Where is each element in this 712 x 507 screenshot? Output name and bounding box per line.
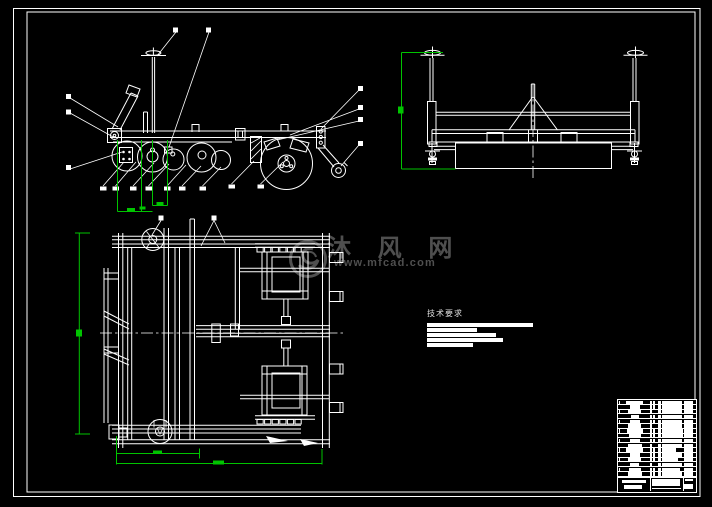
dimension-text-mark (213, 461, 224, 465)
title-block-cell-text (629, 468, 641, 471)
title-block-cell-text (619, 468, 621, 471)
title-block-cell-text (653, 434, 655, 437)
plan-view-right-stubs (330, 253, 344, 413)
title-block-cell-text (662, 401, 682, 404)
technical-requirements-line (427, 338, 503, 342)
plan-view-frame (104, 219, 330, 448)
title-block-cell-text (662, 405, 682, 408)
title-block-cell-text (650, 424, 652, 427)
title-block-cell-text (684, 458, 694, 461)
title-block-cell-text (662, 453, 682, 456)
side-view-press-roller-arm (317, 127, 348, 178)
technical-requirements-lines (427, 323, 547, 347)
title-block-cell-text (658, 434, 662, 437)
title-block-cell-text (653, 405, 655, 408)
title-block-cell-text (662, 463, 682, 466)
title-block-cell-text (684, 463, 694, 466)
title-block-cell-text (630, 463, 639, 466)
dimension-text-mark (157, 202, 164, 206)
title-block-cell-text (619, 458, 621, 461)
title-block-cell-text (662, 415, 682, 418)
plan-view-dimensions (75, 233, 322, 465)
title-block-cell-text (619, 429, 621, 432)
title-block-cell-text (650, 448, 652, 451)
title-block-cell-text (650, 458, 652, 461)
title-block-cell-text (653, 472, 655, 475)
title-block-cell-text (662, 458, 678, 461)
title-block-cell-text (684, 439, 694, 442)
title-block-cell-text (650, 401, 652, 404)
title-block-cell-text (627, 429, 643, 432)
title-block-cell-text (684, 472, 694, 475)
title-block-cell-text (619, 420, 621, 423)
title-block-cell-text (630, 405, 640, 408)
title-block-cell-text (684, 424, 694, 427)
title-block-cell-text (684, 415, 694, 418)
title-block-cell-text (658, 458, 662, 461)
title-block-scale-cell (684, 484, 693, 489)
title-block-footer (618, 477, 696, 491)
title-block-cell-text (650, 472, 652, 475)
drawing-canvas: 沐 风 网 www.mfcad.com (0, 0, 712, 507)
title-block-cell-text (684, 429, 694, 432)
plan-view (75, 216, 346, 465)
title-block-cell-text (684, 410, 694, 413)
title-block-cell-text (658, 468, 662, 471)
title-block-cell-text (658, 429, 662, 432)
side-view-frame (108, 85, 327, 153)
title-block-cell-text (650, 468, 652, 471)
dimension-text-mark (76, 330, 82, 337)
title-block-cell-text (684, 448, 694, 451)
title-block-cell-text (684, 453, 694, 456)
title-block-cell-text (619, 439, 621, 442)
title-block-cell-text (662, 448, 676, 451)
title-block-cell-text (628, 444, 642, 447)
title-block-cell-text (628, 410, 641, 413)
technical-requirements: 技术要求 (427, 308, 547, 348)
rear-view (398, 47, 648, 179)
title-block (617, 399, 697, 493)
title-block-cell-text (658, 472, 662, 475)
dimension-text-mark (140, 207, 146, 210)
technical-requirements-line (427, 323, 533, 327)
title-block-cell-text (653, 439, 655, 442)
title-block-cell-text (658, 405, 662, 408)
title-block-cell-text (628, 424, 641, 427)
title-block-cell-text (653, 458, 655, 461)
title-block-cell-text (684, 401, 694, 404)
title-block-drawing-number (624, 485, 642, 489)
rear-view-end-hardware (425, 142, 642, 165)
title-block-cell-text (650, 429, 652, 432)
rear-view-roller (434, 143, 633, 169)
title-block-cell-text (662, 410, 682, 413)
title-block-cell-text (653, 468, 655, 471)
title-block-cell-text (684, 434, 694, 437)
title-block-company-cell (652, 479, 680, 486)
title-block-cell-text (631, 415, 639, 418)
title-block-cell-text (658, 424, 662, 427)
title-block-cell-text (662, 472, 682, 475)
title-block-cell-text (658, 420, 662, 423)
side-view-tines (100, 161, 283, 191)
technical-requirements-line (427, 343, 473, 347)
title-block-rows (618, 400, 696, 477)
dimension-text-mark (127, 208, 135, 212)
title-block-cell-text (653, 429, 655, 432)
title-block-cell-text (662, 434, 683, 437)
side-view-discs (112, 141, 231, 172)
dimension-text-mark (153, 451, 162, 455)
technical-requirements-line (427, 333, 496, 337)
title-block-cell-text (662, 424, 682, 427)
title-block-cell-text (658, 401, 662, 404)
plan-view-disc-hubs (142, 229, 172, 444)
title-block-cell-text (630, 439, 640, 442)
title-block-cell-text (619, 410, 621, 413)
technical-requirements-heading: 技术要求 (427, 308, 547, 319)
sheet-border (14, 9, 701, 497)
title-block-cell-text (630, 420, 640, 423)
plan-view-roller-assemblies (255, 244, 318, 446)
side-view-mast (141, 48, 166, 134)
title-block-cell-text (658, 439, 662, 442)
title-block-cell-text (626, 448, 643, 451)
title-block-cell-text (650, 420, 652, 423)
title-block-cell-text (662, 420, 682, 423)
title-block-cell-text (684, 405, 694, 408)
plan-view-callout-markers (152, 216, 225, 247)
technical-requirements-line (427, 328, 477, 332)
title-block-cell-text (650, 434, 652, 437)
title-block-cell-text (626, 401, 643, 404)
title-block-cell-text (653, 448, 655, 451)
title-block-cell-text (650, 410, 652, 413)
title-block-cell-text (628, 458, 641, 461)
title-block-cell-text (650, 405, 652, 408)
rear-view-frame (432, 112, 635, 142)
title-block-cell-text (650, 463, 652, 466)
title-block-cell-text (653, 415, 655, 418)
title-block-cell-text (629, 434, 641, 437)
title-block-cell-text (658, 415, 662, 418)
title-block-cell-text (653, 420, 655, 423)
title-block-cell-text (662, 429, 683, 432)
title-block-cell-text (658, 453, 662, 456)
title-block-cell-text (662, 439, 682, 442)
title-block-cell-text (619, 401, 621, 404)
title-block-cell-text (653, 453, 655, 456)
dimension-text-mark (398, 107, 404, 114)
title-block-cell-text (658, 448, 662, 451)
title-block-cell-text (650, 439, 652, 442)
title-block-cell-text (650, 415, 652, 418)
rear-view-dimensions (398, 53, 456, 170)
title-block-cell-text (650, 444, 652, 447)
title-block-cell-text (619, 448, 621, 451)
title-block-cell-text (650, 453, 652, 456)
title-block-cell-text (684, 468, 694, 471)
title-block-cell-text (628, 472, 642, 475)
title-block-cell-text (662, 468, 680, 471)
title-block-drawing-name (622, 480, 646, 484)
title-block-cell-text (662, 444, 682, 447)
title-block-cell-text (630, 453, 640, 456)
title-block-cell-text (658, 410, 662, 413)
title-block-cell-text (658, 463, 662, 466)
title-block-cell-text (684, 444, 694, 447)
title-block-cell-text (653, 401, 655, 404)
title-block-cell-text (684, 420, 694, 423)
title-block-cell-text (658, 444, 662, 447)
side-view (66, 28, 363, 212)
drawing-sheet (0, 0, 712, 507)
